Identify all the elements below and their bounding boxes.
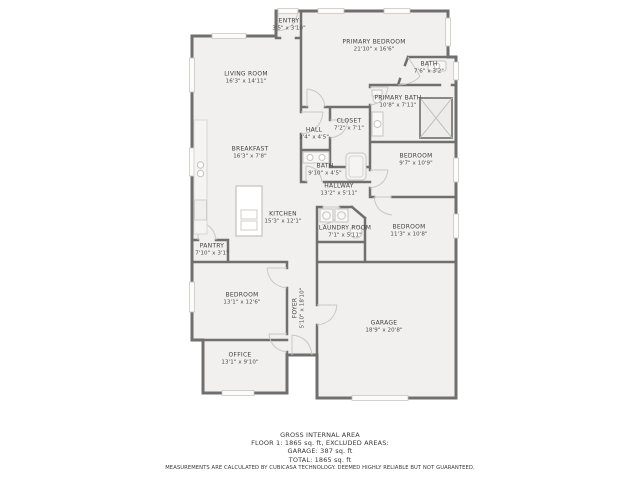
- room-dims: 18'9" x 20'8": [365, 327, 402, 334]
- room-dims: 7'2" x 7'1": [334, 125, 364, 132]
- room-dims: 16'3" x 14'11": [224, 78, 268, 85]
- floor1-area-line: FLOOR 1: 1865 sq. ft, EXCLUDED AREAS:: [0, 439, 640, 447]
- room-label-primary-bedroom: PRIMARY BEDROOM 21'10" x 16'6": [342, 39, 405, 54]
- room-name: PRIMARY BEDROOM: [342, 39, 405, 47]
- window-icon: [222, 391, 254, 396]
- window-icon: [190, 282, 195, 312]
- room-name: BATH: [414, 61, 444, 69]
- room-dims: 7'10" x 3'1": [195, 250, 229, 257]
- room-dims: 5'10" x 18'10": [299, 288, 306, 329]
- floorplan-drawing: [0, 0, 640, 480]
- sink-icon: [374, 121, 381, 128]
- room-dims: 15'3" x 12'1": [264, 218, 301, 225]
- room-label-bedroom-mid-right: BEDROOM 9'7" x 10'9": [399, 153, 433, 168]
- room-label-closet: CLOSET 7'2" x 7'1": [334, 118, 364, 133]
- room-dims: 9'7" x 10'9": [399, 160, 433, 167]
- room-label-hallway: HALLWAY 13'2" x 5'11": [320, 183, 357, 198]
- room-label-laundry-room: LAUNDRY ROOM 7'1" x 5'11": [319, 225, 371, 240]
- room-name: OFFICE: [221, 352, 258, 360]
- room-name: ENTRY: [272, 18, 306, 26]
- sink-icon: [319, 155, 325, 161]
- area-summary: GROSS INTERNAL AREA FLOOR 1: 1865 sq. ft…: [0, 431, 640, 472]
- room-name: LAUNDRY ROOM: [319, 225, 371, 233]
- room-name: BEDROOM: [399, 153, 433, 161]
- room-label-bath-mid: BATH 9'10" x 4'5": [308, 163, 342, 178]
- kitchen-sink-icon: [197, 170, 203, 176]
- room-label-hall: HALL 3'4" x 4'5": [299, 127, 329, 142]
- room-dims: 7'1" x 5'11": [319, 232, 371, 239]
- room-name: BREAKFAST: [232, 146, 269, 154]
- room-name: LIVING ROOM: [224, 71, 268, 79]
- room-label-bedroom-left: BEDROOM 13'1" x 12'6": [223, 292, 260, 307]
- room-dims: 9'10" x 4'5": [308, 170, 342, 177]
- sink-icon: [307, 155, 313, 161]
- room-dims: 21'10" x 16'6": [342, 46, 405, 53]
- room-dims: 7'6" x 3'2": [414, 68, 444, 75]
- dryer-icon: [335, 209, 348, 222]
- stove-icon: [195, 200, 207, 220]
- measurement-disclaimer: MEASUREMENTS ARE CALCULATED BY CUBICASA …: [0, 464, 640, 473]
- room-name: GARAGE: [365, 320, 402, 328]
- room-name: FOYER: [292, 288, 300, 329]
- window-icon: [454, 62, 459, 80]
- window-icon: [212, 34, 246, 39]
- room-dims: 13'1" x 12'6": [223, 299, 260, 306]
- room-name: HALLWAY: [320, 183, 357, 191]
- total-area-line: TOTAL: 1865 sq. ft: [0, 456, 640, 464]
- room-name: BATH: [308, 163, 342, 171]
- room-dims: 13'2" x 5'11": [320, 190, 357, 197]
- garage-area-line: GARAGE: 387 sq. ft: [0, 447, 640, 455]
- room-name: KITCHEN: [264, 211, 301, 219]
- room-dims: 3'5" x 3'10": [272, 25, 306, 32]
- room-label-primary-bath: PRIMARY BATH 10'8" x 7'11": [374, 95, 421, 110]
- room-label-bedroom-lower-right: BEDROOM 11'3" x 10'8": [390, 224, 427, 239]
- washer-icon: [320, 209, 333, 222]
- room-label-foyer: FOYER 5'10" x 18'10": [292, 288, 307, 329]
- room-label-living-room: LIVING ROOM 16'3" x 14'11": [224, 71, 268, 86]
- room-name: CLOSET: [334, 118, 364, 126]
- room-label-pantry: PANTRY 7'10" x 3'1": [195, 243, 229, 258]
- room-dims: 10'8" x 7'11": [374, 102, 421, 109]
- room-label-garage: GARAGE 18'9" x 20'8": [365, 320, 402, 335]
- kitchen-sink-icon: [197, 162, 203, 168]
- front-door-opening: [278, 9, 298, 14]
- window-icon: [384, 9, 410, 14]
- room-label-bath-top: BATH 7'6" x 3'2": [414, 61, 444, 76]
- room-label-kitchen: KITCHEN 15'3" x 12'1": [264, 211, 301, 226]
- room-label-entry: ENTRY 3'5" x 3'10": [272, 18, 306, 33]
- room-label-breakfast: BREAKFAST 16'3" x 7'8": [232, 146, 269, 161]
- room-dims: 11'3" x 10'8": [390, 231, 427, 238]
- room-dims: 16'3" x 7'8": [232, 153, 269, 160]
- window-icon: [190, 58, 195, 92]
- window-icon: [318, 9, 344, 14]
- room-name: PRIMARY BATH: [374, 95, 421, 103]
- window-icon: [454, 158, 459, 182]
- room-name: PANTRY: [195, 243, 229, 251]
- room-label-office: OFFICE 13'1" x 9'10": [221, 352, 258, 367]
- room-dims: 3'4" x 4'5": [299, 134, 329, 141]
- kitchen-island-icon: [236, 186, 262, 236]
- room-name: BEDROOM: [223, 292, 260, 300]
- gross-internal-area-title: GROSS INTERNAL AREA: [0, 431, 640, 439]
- window-icon: [454, 214, 459, 238]
- room-name: BEDROOM: [390, 224, 427, 232]
- room-name: HALL: [299, 127, 329, 135]
- room-dims: 13'1" x 9'10": [221, 359, 258, 366]
- floorplan-page: ENTRY 3'5" x 3'10" PRIMARY BEDROOM 21'10…: [0, 0, 640, 480]
- garage-door-icon: [352, 396, 408, 401]
- window-icon: [446, 18, 451, 46]
